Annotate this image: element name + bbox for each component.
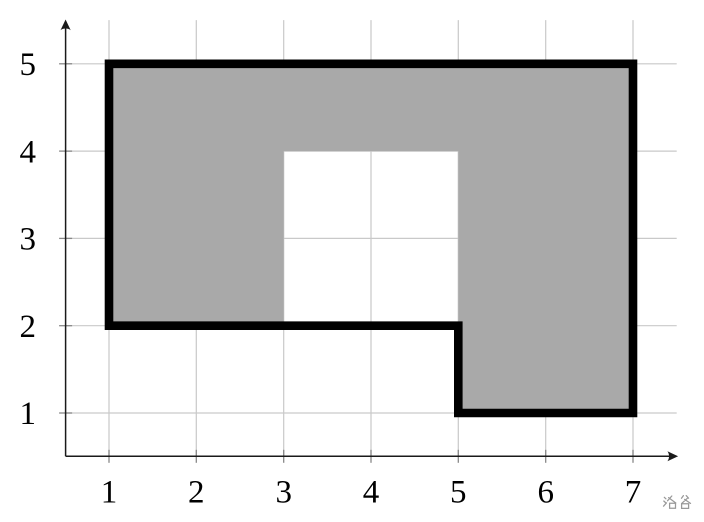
svg-text:3: 3 — [275, 475, 292, 511]
svg-text:4: 4 — [20, 134, 37, 170]
svg-text:5: 5 — [450, 475, 467, 511]
svg-text:6: 6 — [537, 475, 554, 511]
svg-text:3: 3 — [20, 222, 37, 258]
svg-text:1: 1 — [20, 396, 37, 432]
svg-text:4: 4 — [363, 475, 380, 511]
svg-text:1: 1 — [101, 475, 118, 511]
svg-text:5: 5 — [20, 47, 37, 83]
svg-text:2: 2 — [188, 475, 205, 511]
svg-text:7: 7 — [625, 475, 642, 511]
svg-text:2: 2 — [20, 309, 37, 345]
